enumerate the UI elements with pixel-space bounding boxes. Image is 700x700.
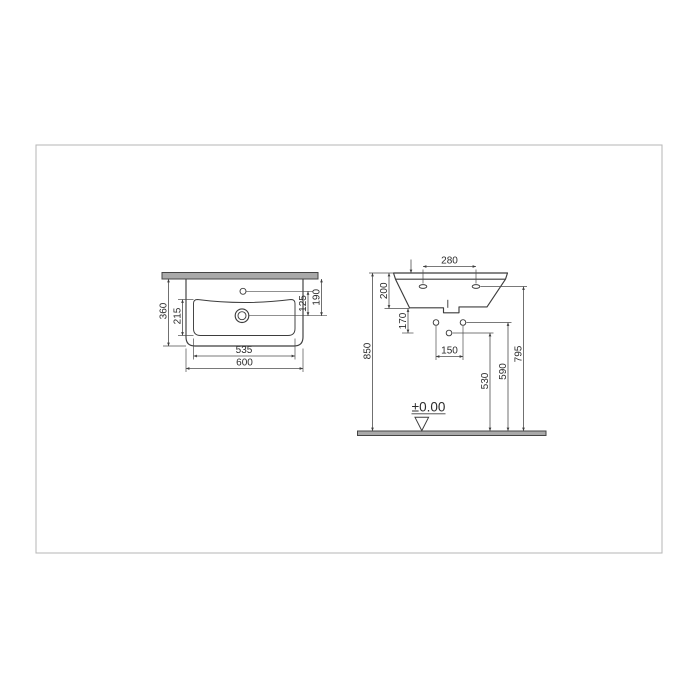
dim-label-795: 795: [514, 345, 525, 362]
wall-section: [162, 273, 318, 280]
dim-label-170: 170: [398, 312, 409, 329]
dim-label-600: 600: [236, 358, 253, 369]
dim-label-360: 360: [159, 302, 170, 319]
dim-label-200: 200: [379, 282, 390, 299]
dim-label-150: 150: [441, 346, 458, 357]
dim-label-530: 530: [480, 372, 491, 389]
dim-label-280: 280: [441, 256, 458, 267]
floor-level-label: ±0.00: [412, 400, 446, 415]
technical-drawing-canvas: 125 190 360 215 535: [0, 0, 700, 700]
dim-label-535: 535: [236, 345, 253, 356]
dim-label-215: 215: [173, 307, 184, 324]
dim-label-125: 125: [298, 295, 309, 312]
floor-section: [358, 431, 547, 436]
dim-label-190: 190: [312, 289, 323, 306]
drawing-page: 125 190 360 215 535: [0, 0, 700, 700]
dim-label-850: 850: [363, 342, 374, 359]
dim-label-590: 590: [498, 363, 509, 380]
drawing-frame: [36, 145, 662, 553]
